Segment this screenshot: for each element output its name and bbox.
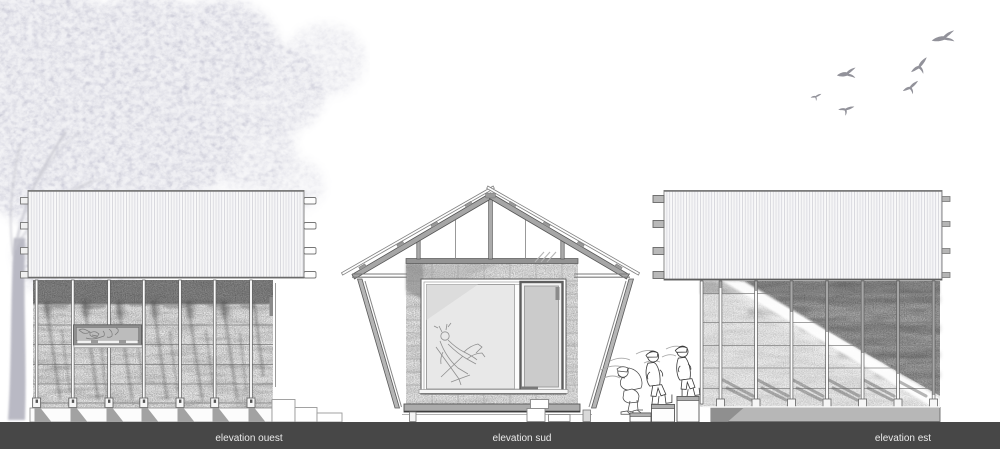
svg-text:elevation sud: elevation sud	[493, 433, 552, 444]
svg-text:elevation est: elevation est	[875, 433, 931, 444]
svg-text:elevation ouest: elevation ouest	[215, 433, 282, 444]
